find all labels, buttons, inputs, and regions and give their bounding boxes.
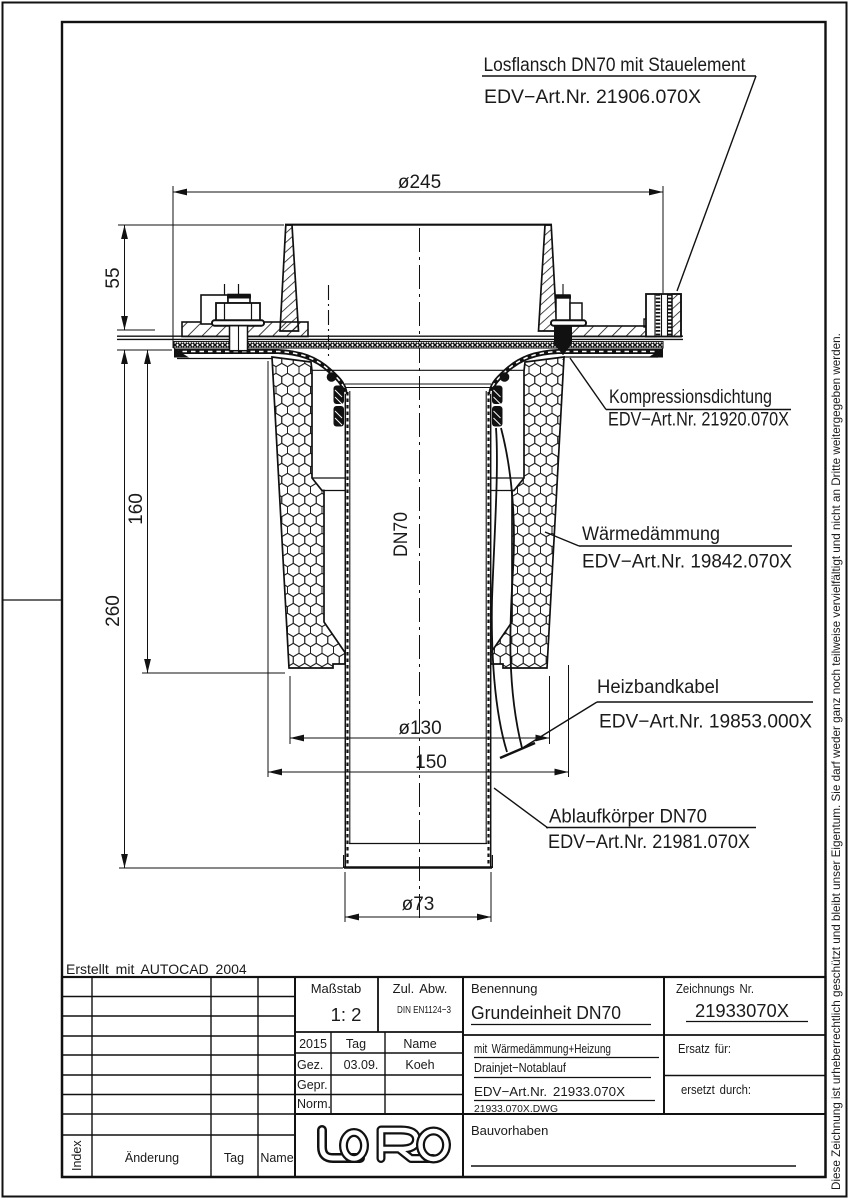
svg-text:Maßstab: Maßstab xyxy=(311,981,362,996)
svg-text:Ablaufkörper DN70: Ablaufkörper DN70 xyxy=(549,807,707,828)
svg-text:Norm.: Norm. xyxy=(297,1097,331,1111)
svg-text:Zul. Abw.: Zul. Abw. xyxy=(393,981,448,996)
svg-text:EDV−Art.Nr. 21920.070X: EDV−Art.Nr. 21920.070X xyxy=(608,410,789,431)
svg-text:EDV−Art.Nr. 21906.070X: EDV−Art.Nr. 21906.070X xyxy=(484,87,701,108)
svg-text:EDV−Art.Nr. 21933.070X: EDV−Art.Nr. 21933.070X xyxy=(474,1084,625,1099)
svg-text:Losflansch DN70 mit Stauelemen: Losflansch DN70 mit Stauelement xyxy=(484,55,747,76)
svg-text:Ersatz für:: Ersatz für: xyxy=(678,1041,731,1056)
svg-text:1: 2: 1: 2 xyxy=(331,1004,362,1025)
svg-text:Heizbandkabel: Heizbandkabel xyxy=(597,677,719,698)
svg-text:EDV−Art.Nr. 19853.000X: EDV−Art.Nr. 19853.000X xyxy=(599,712,812,733)
svg-text:Tag: Tag xyxy=(224,1151,244,1165)
svg-text:21933.070X.DWG: 21933.070X.DWG xyxy=(474,1103,558,1115)
svg-text:DN70: DN70 xyxy=(391,512,412,557)
svg-text:mit Wärmedämmung+Heizung: mit Wärmedämmung+Heizung xyxy=(474,1041,611,1056)
svg-text:Name: Name xyxy=(403,1037,436,1051)
svg-text:Gepr.: Gepr. xyxy=(297,1078,328,1092)
svg-text:Drainjet−Notablauf: Drainjet−Notablauf xyxy=(474,1060,566,1075)
svg-text:Benennung: Benennung xyxy=(471,981,538,996)
svg-text:DIN EN1124−3: DIN EN1124−3 xyxy=(397,1004,451,1016)
svg-text:2015: 2015 xyxy=(299,1037,327,1051)
svg-text:EDV−Art.Nr. 19842.070X: EDV−Art.Nr. 19842.070X xyxy=(582,552,792,573)
svg-text:Name: Name xyxy=(260,1151,293,1165)
svg-text:Bauvorhaben: Bauvorhaben xyxy=(471,1123,548,1138)
svg-text:Index: Index xyxy=(70,1140,84,1171)
svg-text:03.09.: 03.09. xyxy=(344,1058,379,1072)
svg-text:21933070X: 21933070X xyxy=(695,1000,789,1021)
svg-text:Grundeinheit DN70: Grundeinheit DN70 xyxy=(471,1002,621,1023)
svg-text:EDV−Art.Nr. 21981.070X: EDV−Art.Nr. 21981.070X xyxy=(548,832,750,853)
svg-text:ø73: ø73 xyxy=(402,894,435,915)
svg-text:55: 55 xyxy=(103,267,124,288)
svg-text:Zeichnungs Nr.: Zeichnungs Nr. xyxy=(676,981,754,996)
svg-text:Wärmedämmung: Wärmedämmung xyxy=(582,524,720,545)
svg-text:160: 160 xyxy=(126,493,147,525)
svg-text:ø245: ø245 xyxy=(398,172,441,193)
svg-text:ø130: ø130 xyxy=(398,718,441,739)
svg-text:Erstellt mit AUTOCAD 2004: Erstellt mit AUTOCAD 2004 xyxy=(66,961,247,977)
svg-text:Tag: Tag xyxy=(346,1037,366,1051)
svg-text:ersetzt durch:: ersetzt durch: xyxy=(681,1082,751,1097)
svg-text:Änderung: Änderung xyxy=(125,1151,179,1165)
svg-text:Kompressionsdichtung: Kompressionsdichtung xyxy=(609,387,772,408)
svg-text:Gez.: Gez. xyxy=(297,1058,323,1072)
svg-text:260: 260 xyxy=(103,595,124,627)
svg-text:Koeh: Koeh xyxy=(405,1058,434,1072)
svg-text:Diese Zeichnung ist urheberrec: Diese Zeichnung ist urheberrechtlich ges… xyxy=(830,333,843,1190)
svg-text:150: 150 xyxy=(415,752,447,773)
